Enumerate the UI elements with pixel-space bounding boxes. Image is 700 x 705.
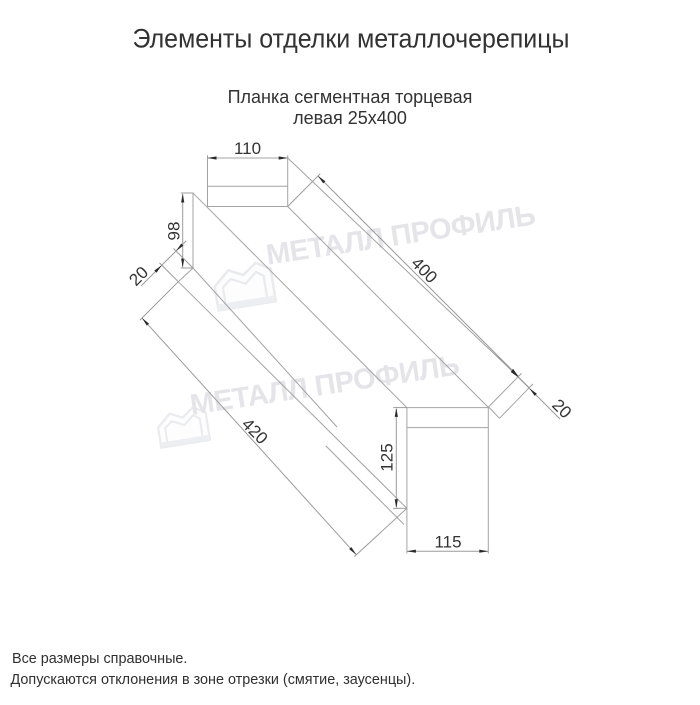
- svg-text:110: 110: [234, 139, 261, 158]
- svg-text:125: 125: [378, 443, 397, 471]
- svg-text:98: 98: [165, 222, 184, 241]
- svg-text:Все размеры справочные.: Все размеры справочные.: [12, 651, 187, 667]
- svg-text:115: 115: [434, 533, 461, 552]
- svg-text:Планка сегментная торцевая: Планка сегментная торцевая: [228, 87, 473, 107]
- svg-text:Элементы отделки металлочерепи: Элементы отделки металлочерепицы: [133, 23, 570, 53]
- svg-text:левая 25х400: левая 25х400: [293, 108, 407, 128]
- svg-text:Допускаются отклонения в зоне: Допускаются отклонения в зоне отрезки (с…: [11, 672, 416, 688]
